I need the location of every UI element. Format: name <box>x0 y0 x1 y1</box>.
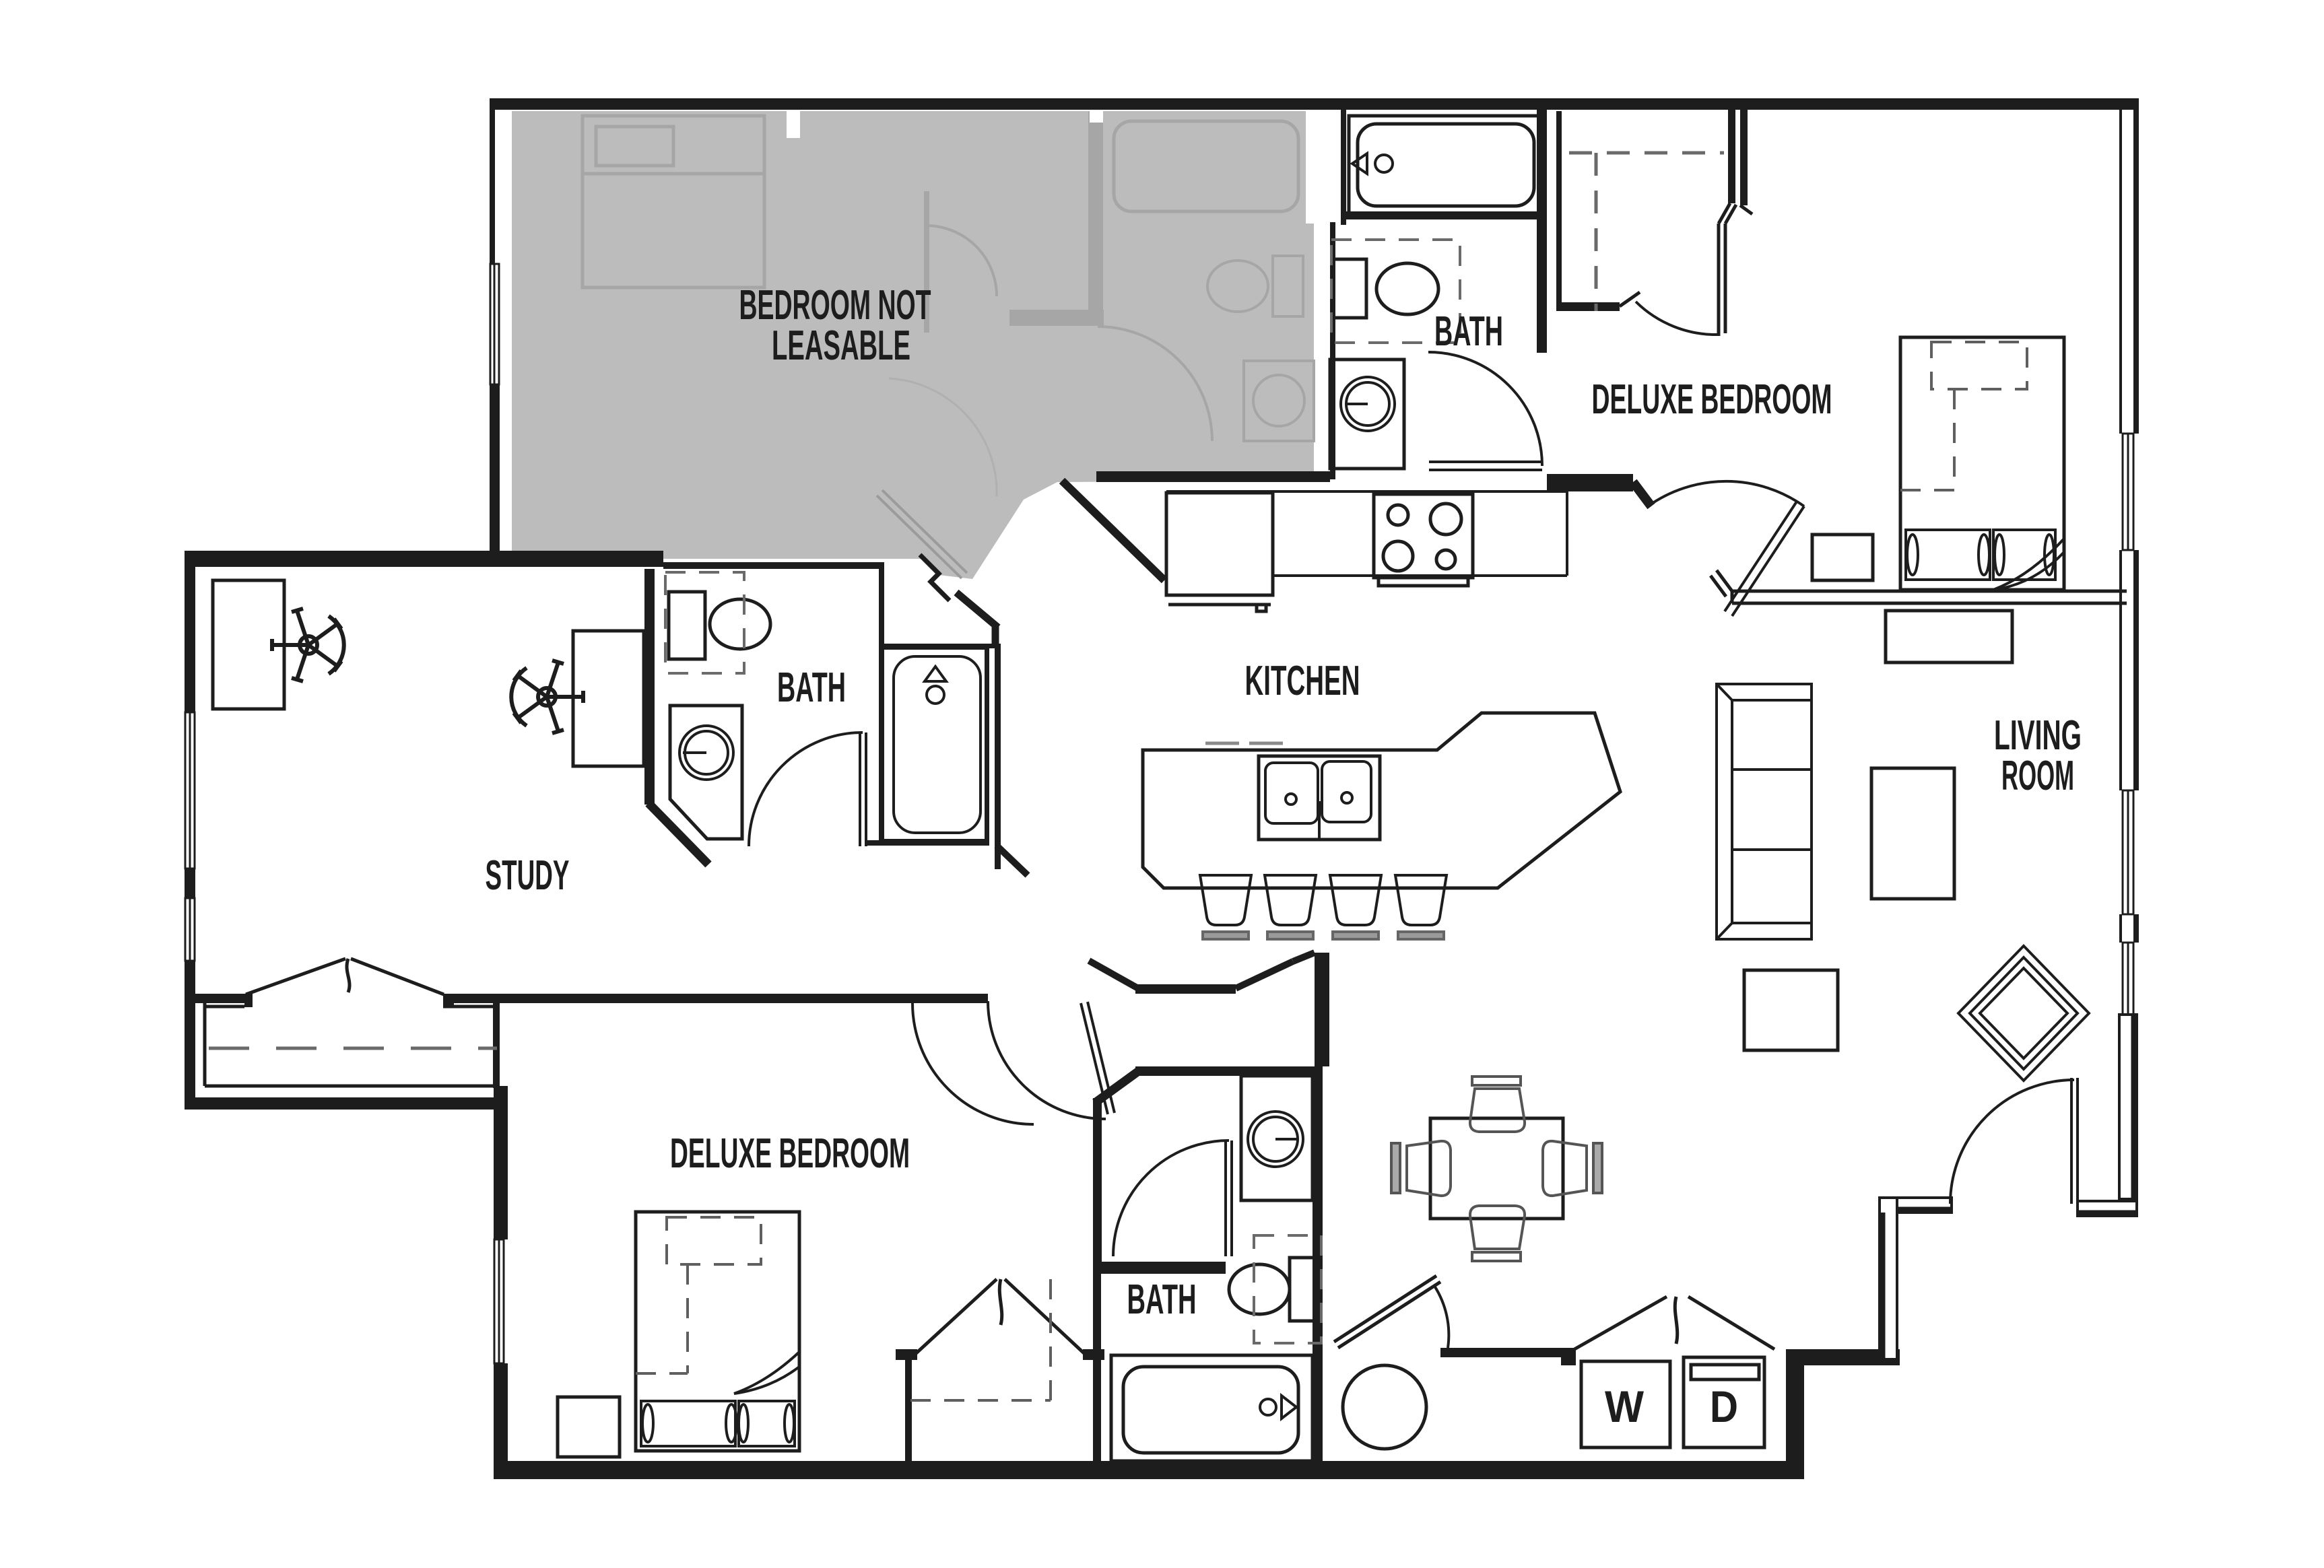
svg-text:DELUXE BEDROOM: DELUXE BEDROOM <box>670 1130 910 1177</box>
svg-text:D: D <box>1710 1382 1738 1431</box>
svg-text:BEDROOM NOT: BEDROOM NOT <box>739 282 931 329</box>
svg-text:ROOM: ROOM <box>2001 753 2074 799</box>
svg-text:LIVING: LIVING <box>1994 712 2082 759</box>
svg-text:KITCHEN: KITCHEN <box>1245 658 1360 704</box>
svg-text:DELUXE BEDROOM: DELUXE BEDROOM <box>1592 376 1832 423</box>
svg-text:BATH: BATH <box>777 664 846 711</box>
svg-text:LEASABLE: LEASABLE <box>772 322 910 369</box>
svg-text:BATH: BATH <box>1434 308 1503 355</box>
svg-text:W: W <box>1605 1382 1645 1431</box>
svg-text:STUDY: STUDY <box>486 852 570 899</box>
svg-text:BATH: BATH <box>1127 1276 1197 1323</box>
